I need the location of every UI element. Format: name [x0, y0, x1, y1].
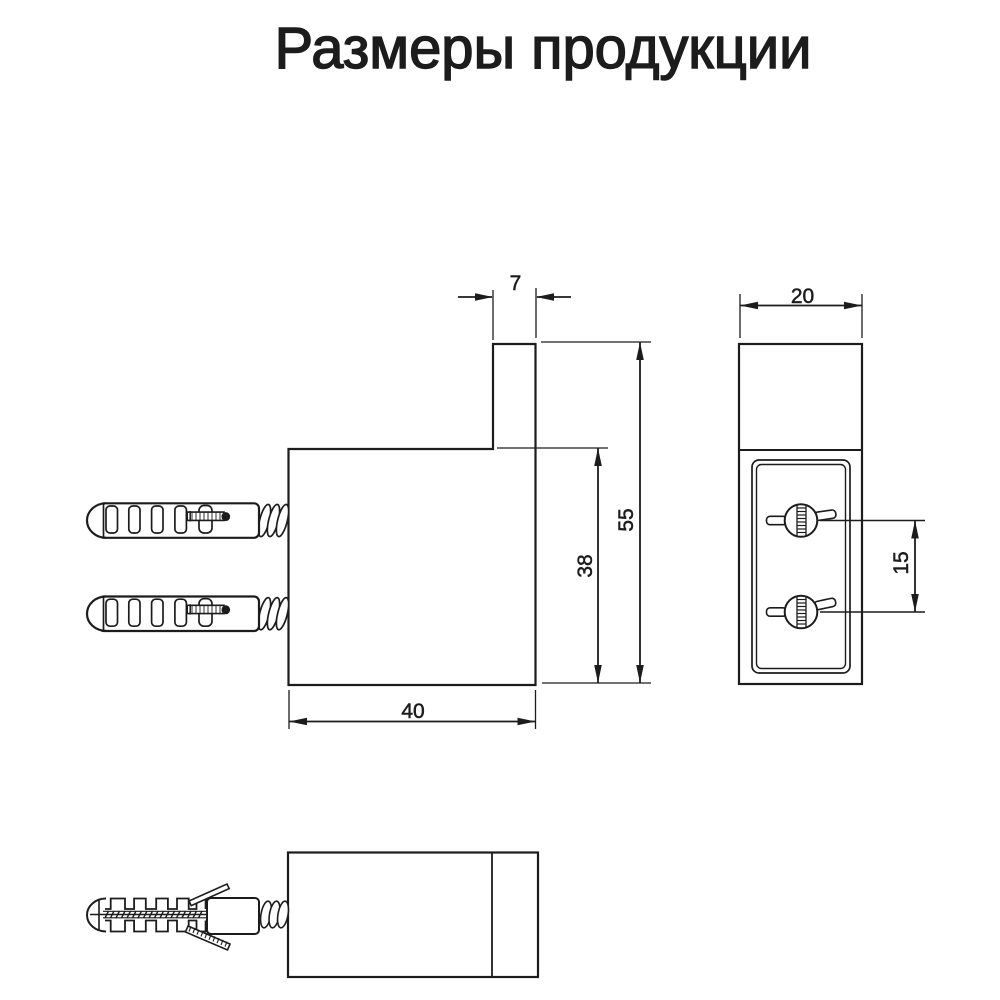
svg-text:40: 40	[401, 700, 424, 723]
svg-text:38: 38	[574, 554, 597, 577]
svg-text:15: 15	[890, 551, 913, 574]
svg-text:20: 20	[791, 285, 814, 308]
svg-text:7: 7	[510, 272, 522, 295]
svg-text:55: 55	[615, 508, 638, 531]
svg-text:Размеры продукции: Размеры продукции	[275, 16, 812, 81]
